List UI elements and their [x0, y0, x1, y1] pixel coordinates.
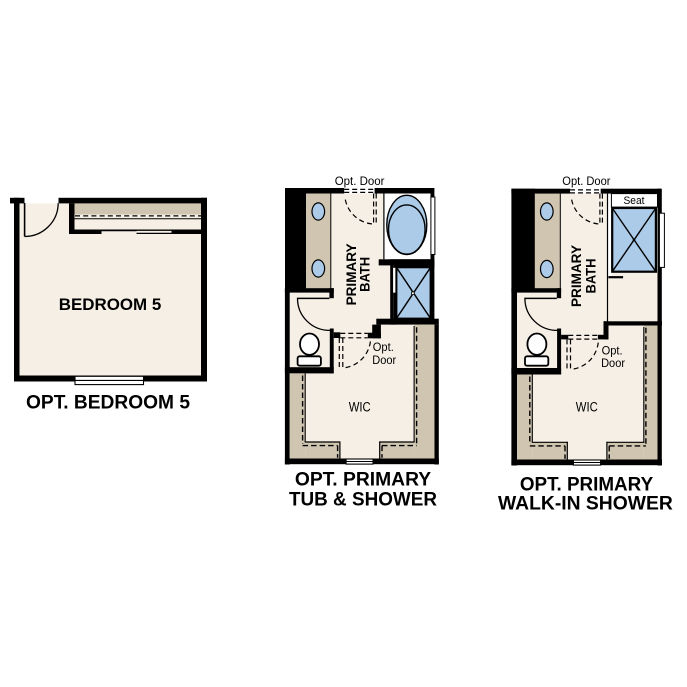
svg-text:BEDROOM 5: BEDROOM 5 [59, 296, 162, 314]
svg-text:OPT. BEDROOM 5: OPT. BEDROOM 5 [26, 392, 190, 414]
svg-text:Door: Door [601, 356, 625, 370]
svg-text:Opt.: Opt. [602, 343, 623, 357]
svg-text:TUB & SHOWER: TUB & SHOWER [289, 489, 437, 510]
svg-text:WIC: WIC [576, 400, 598, 415]
svg-text:Door: Door [372, 353, 396, 367]
svg-text:BATH: BATH [356, 257, 372, 292]
svg-text:Seat: Seat [624, 195, 645, 207]
svg-text:WIC: WIC [349, 400, 371, 415]
svg-text:Opt. Door: Opt. Door [335, 175, 385, 188]
svg-text:OPT. PRIMARY: OPT. PRIMARY [295, 470, 432, 491]
svg-text:BATH: BATH [583, 259, 599, 294]
svg-text:Opt. Door: Opt. Door [562, 175, 610, 188]
svg-text:WALK-IN SHOWER: WALK-IN SHOWER [498, 493, 673, 514]
svg-text:OPT. PRIMARY: OPT. PRIMARY [520, 474, 654, 495]
svg-text:Opt.: Opt. [373, 340, 394, 354]
svg-text:PRIMARY: PRIMARY [568, 244, 584, 307]
